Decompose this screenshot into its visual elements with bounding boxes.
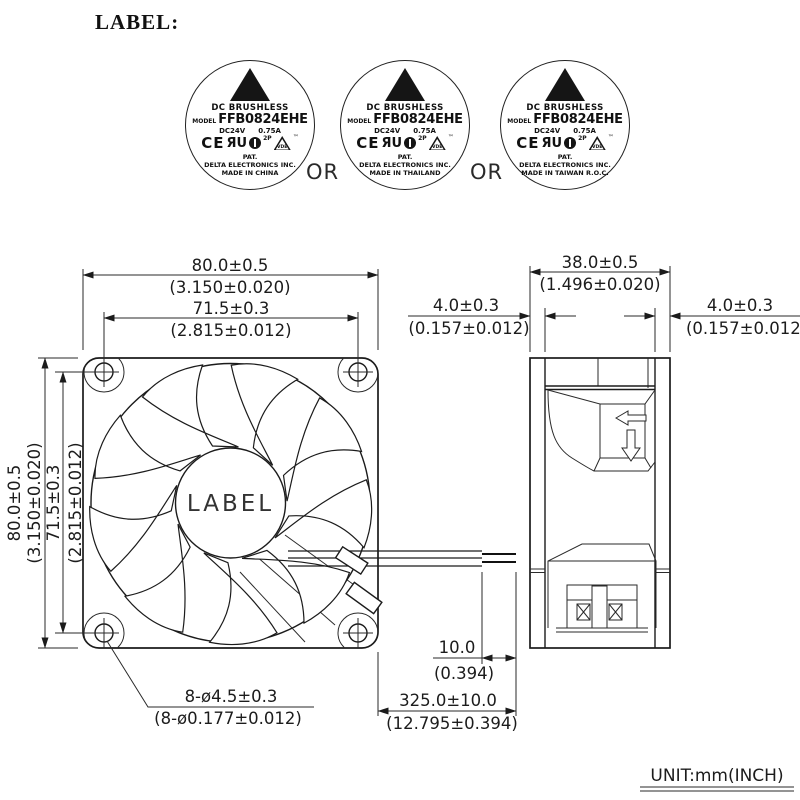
or-separator-1: OR [306,160,339,184]
model-prefix: MODEL [192,118,216,125]
technical-drawing: LABEL [0,250,800,800]
dim-front-hole-pitch-vertical: 71.5±0.3 (2.815±0.012) [44,372,95,633]
label-section-heading: LABEL: [95,10,179,35]
trademark-symbol: ™ [293,134,299,141]
bearing [609,604,622,620]
dim-text-inch: (0.157±0.012) [408,319,529,338]
mounting-hole [343,618,373,648]
bevel-bottom [645,458,651,468]
dim-flange-left: 4.0±0.3 (0.157±0.012) [408,296,576,338]
dim-text-inch: (0.157±0.012) [686,319,800,338]
label-cert-row: CE ЯU 2P VDE ™ [516,134,613,152]
fan-side-view [530,358,670,648]
csa-mark-icon [404,137,416,149]
dim-text-mm: 80.0±0.5 [5,465,24,542]
dim-text-inch: (12.795±0.394) [386,714,518,733]
label-model-row: MODEL FFB0824EHE [347,112,462,127]
fan-blade [270,392,367,501]
dim-mounting-holes: 8-ø4.5±0.3 (8-ø0.177±0.012) [107,641,314,728]
dim-flange-right: 4.0±0.3 (0.157±0.012) [624,296,800,338]
bevel-bottom [594,458,600,471]
unit-text: UNIT:mm(INCH) [650,766,783,786]
bearing [577,604,590,620]
dimensions: 80.0±0.5 (3.150±0.020) 71.5±0.3 (2.815±0… [5,253,800,733]
label-cert-row: CE ЯU 2P VDE ™ [201,134,298,152]
patent-text: PAT. [558,153,573,161]
dim-depth: 38.0±0.5 (1.496±0.020) [530,253,670,352]
dim-text-inch: (8-ø0.177±0.012) [154,709,302,728]
venturi-perspective [548,390,655,471]
dim-text-mm: 4.0±0.3 [433,296,499,315]
company-text: DELTA ELECTRONICS INC. [519,161,611,169]
motor-section [548,544,656,632]
vde-mark-icon: VDE [274,136,291,150]
delta-logo-icon [545,68,585,101]
dim-text-mm: 80.0±0.5 [192,256,269,275]
dim-text-mm: 4.0±0.3 [707,296,773,315]
delta-logo-icon [385,68,425,101]
product-label-china: DC BRUSHLESS MODEL FFB0824EHE DC24V 0.75… [185,60,315,190]
dim-text-inch: (3.150±0.020) [25,442,44,563]
fan-blade [176,553,294,663]
airflow-arrow-icon [616,411,646,425]
ul-recognized-icon: ЯU [542,136,563,151]
dim-text-mm: 8-ø4.5±0.3 [185,687,278,706]
label-model-row: MODEL FFB0824EHE [507,112,622,127]
origin-text: MADE IN TAIWAN R.O.C. [521,169,608,177]
dim-text-inch: (1.496±0.020) [539,275,660,294]
side-outline [530,358,670,648]
insulation-class-text: 2P [578,135,587,142]
ce-mark-icon: CE [356,134,379,152]
csa-mark-icon [564,137,576,149]
model-prefix: MODEL [347,118,371,125]
csa-mark-icon [249,137,261,149]
origin-text: MADE IN CHINA [222,169,279,177]
dim-text-mm: 10.0 [439,638,476,657]
frame-parting-lines [530,569,670,573]
fan-front-view: LABEL [74,341,516,663]
insulation-class-text: 2P [263,135,272,142]
wire-clamp [346,582,382,613]
vde-mark-icon: VDE [429,136,446,150]
company-text: DELTA ELECTRONICS INC. [359,161,451,169]
trademark-symbol: ™ [448,134,454,141]
delta-logo-icon [230,68,270,101]
shaft [592,586,607,628]
ul-recognized-icon: ЯU [382,136,403,151]
dim-front-hole-pitch: 71.5±0.3 (2.815±0.012) [104,299,358,362]
rotation-arrow-icon [622,430,640,461]
ul-recognized-icon: ЯU [227,136,248,151]
or-separator-2: OR [470,160,503,184]
dim-text-mm: 38.0±0.5 [562,253,639,272]
company-text: DELTA ELECTRONICS INC. [204,161,296,169]
dim-strip-length: 10.0 (0.394) [433,572,516,683]
model-number: FFB0824EHE [533,112,623,127]
label-cert-row: CE ЯU 2P VDE ™ [356,134,453,152]
hub-label-text: LABEL [187,491,274,517]
dim-text-inch: (0.394) [434,664,494,683]
unit-note: UNIT:mm(INCH) [640,766,794,791]
model-prefix: MODEL [507,118,531,125]
product-label-thailand: DC BRUSHLESS MODEL FFB0824EHE DC24V 0.75… [340,60,470,190]
dim-text-mm: 71.5±0.3 [193,299,270,318]
patent-text: PAT. [398,153,413,161]
fan-blade [143,365,239,447]
ce-mark-icon: CE [201,134,224,152]
dim-text-mm: 71.5±0.3 [44,465,63,542]
ce-mark-icon: CE [516,134,539,152]
drawing-sheet: LABEL: DC BRUSHLESS MODEL FFB0824EHE DC2… [0,0,800,800]
hub-cap-profile [548,544,656,585]
vde-mark-icon: VDE [589,136,606,150]
patent-text: PAT. [243,153,258,161]
dim-text-inch: (2.815±0.012) [170,321,291,340]
model-number: FFB0824EHE [373,112,463,127]
trademark-symbol: ™ [608,134,614,141]
insulation-class-text: 2P [418,135,427,142]
fan-blade [79,471,176,580]
side-profile [548,390,655,471]
label-model-row: MODEL FFB0824EHE [192,112,307,127]
dim-text-inch: (2.815±0.012) [66,442,85,563]
dim-text-inch: (3.150±0.020) [169,278,290,297]
dim-text-mm: 325.0±10.0 [399,691,497,710]
model-number: FFB0824EHE [218,112,308,127]
product-label-taiwan: DC BRUSHLESS MODEL FFB0824EHE DC24V 0.75… [500,60,630,190]
bevel-top [548,390,655,404]
origin-text: MADE IN THAILAND [369,169,440,177]
